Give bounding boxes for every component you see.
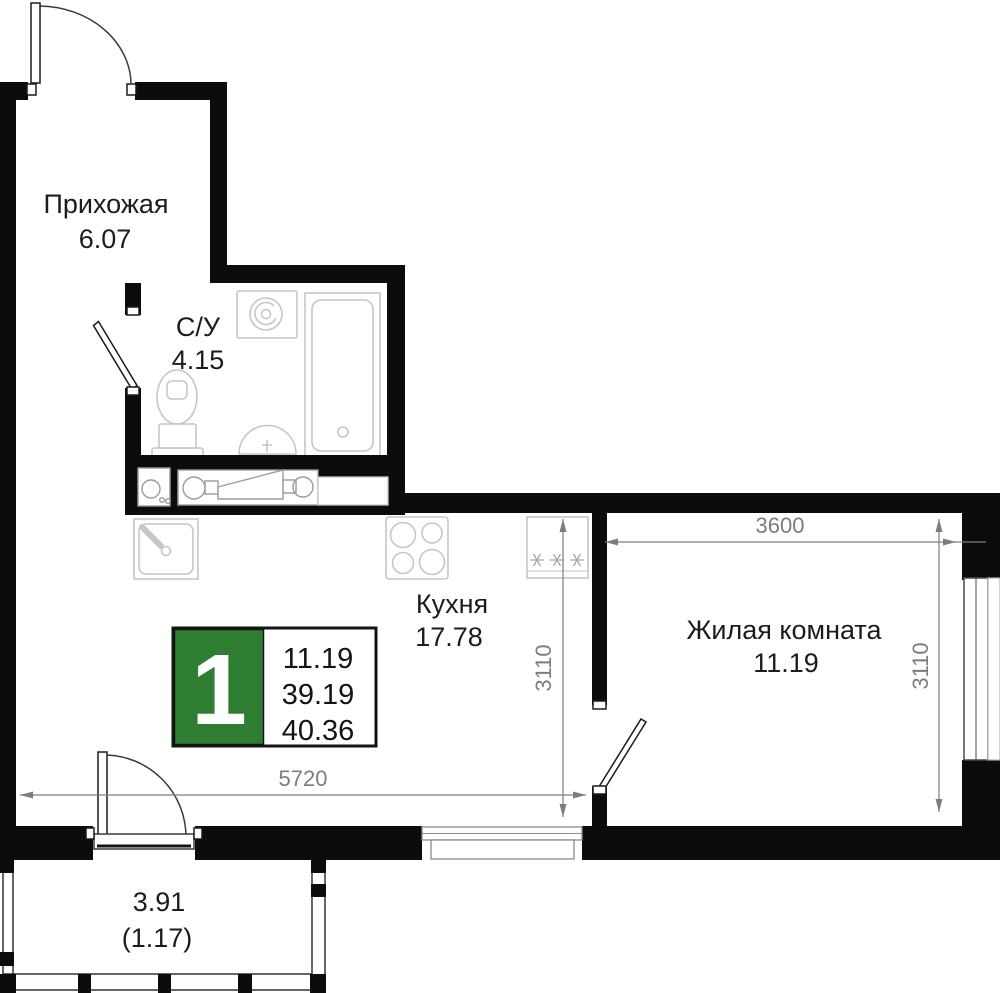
shelf-icon	[318, 477, 388, 505]
bathroom-sink-icon	[239, 426, 296, 455]
room-label-kitchen: Кухня	[416, 589, 488, 619]
room-area-balcony: 3.91	[133, 887, 186, 917]
washing-machine-icon	[237, 291, 297, 338]
room-label-hallway: Прихожая	[43, 189, 168, 219]
kitchen-window	[422, 827, 582, 859]
cabinet-icon	[138, 468, 170, 506]
room-label-living: Жилая комната	[686, 615, 882, 645]
dimension-kitchen-depth: 3110	[531, 519, 567, 817]
room-area-balcony-coefficient: (1.17)	[122, 923, 193, 953]
dimension-label-living-depth: 3110	[908, 642, 933, 689]
dimension-label-kitchen-depth: 3110	[531, 644, 556, 691]
room-area-bathroom: 4.15	[172, 345, 225, 375]
dimension-label-overall-width: 5720	[279, 766, 328, 791]
badge-total-area: 40.36	[282, 715, 355, 747]
living-room-door	[593, 701, 646, 794]
room-label-bathroom: С/У	[176, 312, 221, 342]
dimension-label-living-width: 3600	[756, 513, 805, 538]
living-room-window	[964, 578, 1000, 760]
toilet-icon	[152, 370, 203, 457]
room-area-living: 11.19	[753, 648, 819, 678]
bathtub-icon	[305, 293, 380, 458]
room-area-hallway: 6.07	[79, 224, 132, 254]
dimension-living-width: 3600	[605, 513, 986, 546]
room-area-kitchen: 17.78	[415, 622, 483, 652]
badge-living-area: 11.19	[283, 643, 353, 675]
radiator-icon	[527, 517, 588, 578]
floor-plan-drawing: 5720 3110 3600 3110 Прихожая 6.07 С/У 4.…	[0, 0, 1000, 993]
entrance-door	[27, 3, 136, 95]
counter-icon	[178, 470, 318, 505]
badge-area-without-balcony: 39.19	[282, 679, 355, 711]
stove-icon	[386, 517, 448, 579]
bathroom-door	[94, 307, 140, 395]
unit-info-badge: 1 11.19 39.19 40.36	[173, 628, 376, 747]
balcony-door	[86, 752, 202, 849]
floor-plan: 5720 3110 3600 3110 Прихожая 6.07 С/У 4.…	[0, 0, 1000, 993]
badge-room-count: 1	[191, 634, 247, 746]
kitchen-sink-icon	[134, 519, 198, 579]
dimension-living-depth: 3110	[908, 519, 943, 812]
